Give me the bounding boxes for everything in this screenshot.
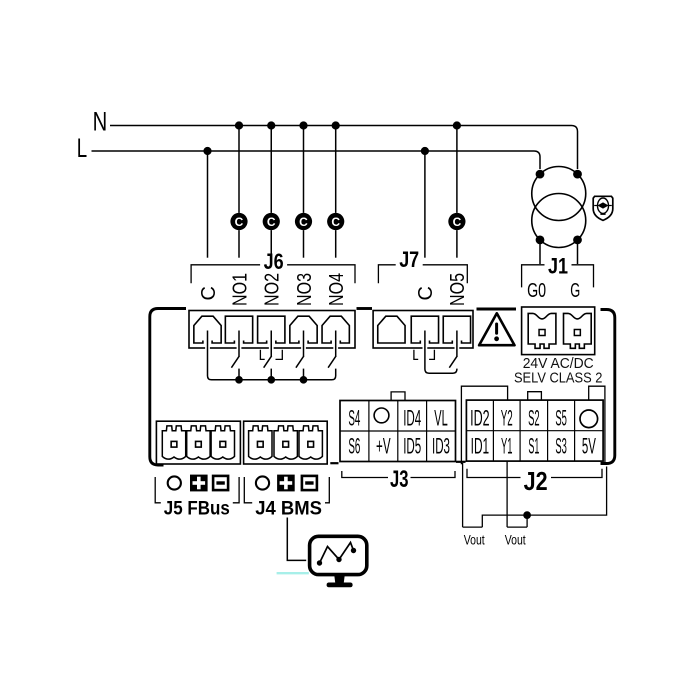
svg-text:NO1: NO1 — [229, 273, 251, 306]
svg-text:S1: S1 — [528, 434, 539, 459]
svg-text:S3: S3 — [555, 434, 567, 459]
svg-text:S2: S2 — [528, 405, 540, 430]
svg-text:Vout: Vout — [464, 533, 485, 548]
svg-text:J5 FBus: J5 FBus — [164, 499, 230, 520]
svg-text:J4 BMS: J4 BMS — [255, 499, 322, 520]
svg-text:S4: S4 — [348, 405, 360, 430]
svg-text:S6: S6 — [348, 434, 360, 459]
svg-text:C: C — [331, 215, 340, 229]
svg-text:J6: J6 — [264, 249, 284, 274]
svg-text:C: C — [453, 215, 462, 229]
svg-text:J2: J2 — [524, 466, 548, 496]
svg-text:NO3: NO3 — [294, 273, 316, 306]
svg-text:ID3: ID3 — [432, 434, 450, 459]
svg-text:VL: VL — [434, 405, 448, 430]
svg-text:ID2: ID2 — [470, 405, 490, 430]
svg-text:24V AC/DC: 24V AC/DC — [523, 356, 594, 372]
svg-text:SELV CLASS 2: SELV CLASS 2 — [514, 371, 603, 387]
svg-text:J7: J7 — [399, 247, 419, 272]
svg-text:G0: G0 — [527, 279, 546, 302]
svg-text:NO5: NO5 — [447, 273, 469, 306]
svg-text:S5: S5 — [555, 405, 567, 430]
svg-text:C: C — [299, 215, 308, 229]
svg-text:C: C — [235, 215, 244, 229]
svg-text:J1: J1 — [548, 254, 568, 279]
svg-text:Vout: Vout — [505, 533, 526, 548]
svg-text:NO4: NO4 — [326, 273, 348, 306]
svg-text:+V: +V — [376, 434, 391, 459]
svg-text:ID1: ID1 — [471, 434, 490, 459]
svg-text:ID5: ID5 — [403, 434, 421, 459]
svg-text:N: N — [93, 106, 108, 136]
svg-text:L: L — [77, 133, 87, 163]
svg-text:C: C — [415, 286, 437, 300]
svg-text:Y2: Y2 — [501, 405, 513, 430]
svg-text:ID4: ID4 — [403, 405, 421, 430]
svg-text:C: C — [198, 286, 220, 300]
svg-text:C: C — [267, 215, 276, 229]
svg-text:NO2: NO2 — [262, 273, 284, 306]
svg-text:Y1: Y1 — [501, 434, 513, 459]
svg-text:G: G — [570, 279, 580, 302]
svg-text:J3: J3 — [390, 466, 409, 493]
svg-text:5V: 5V — [582, 434, 596, 459]
